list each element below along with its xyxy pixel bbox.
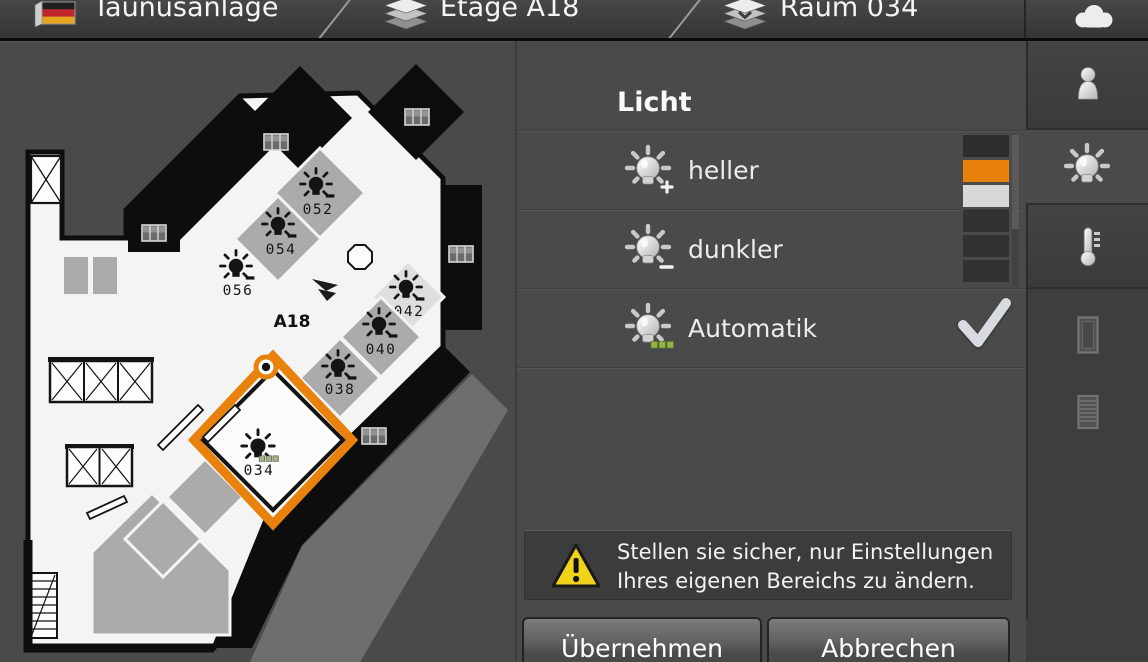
bulb-darker-icon — [620, 221, 678, 279]
bulb-brighter-icon — [620, 142, 678, 200]
level-scrollbar-thumb[interactable] — [1012, 135, 1019, 229]
level-segment — [963, 185, 1009, 207]
tab-temperature[interactable] — [1026, 205, 1148, 289]
elevator-bank-upper — [48, 357, 154, 402]
option-automatik[interactable]: Automatik — [517, 290, 957, 367]
radiator-icon — [142, 225, 166, 241]
warning-text: Stellen sie sicher, nur Einstellungen Ih… — [617, 538, 993, 596]
option-dunkler[interactable]: dunkler — [517, 211, 957, 288]
level-segment — [963, 210, 1009, 232]
tab-presence[interactable] — [1026, 41, 1148, 130]
room-label: 052 — [303, 202, 334, 218]
breadcrumb-separators — [0, 0, 1026, 38]
warning-box: Stellen sie sicher, nur Einstellungen Ih… — [524, 530, 1012, 600]
room-control-screen: Taunusanlage Etage A18 Raum 034 — [0, 0, 1148, 662]
room-label: 040 — [366, 342, 397, 358]
blinds-icon[interactable] — [1067, 391, 1109, 433]
brightness-level-indicator[interactable] — [963, 135, 1009, 285]
cloud-icon[interactable] — [1070, 3, 1118, 31]
tab-area-disabled — [1026, 289, 1148, 619]
floorplan: 052 054 056 042 040 038 — [0, 41, 515, 662]
bulb-auto-icon — [620, 300, 678, 358]
stair-core — [31, 156, 61, 203]
level-segment — [963, 235, 1009, 257]
light-control-panel: Licht heller dunkler A — [515, 41, 1028, 662]
floor-label: A18 — [274, 312, 311, 332]
option-label: dunkler — [688, 235, 783, 264]
level-segment — [963, 135, 1009, 157]
stairs — [29, 573, 57, 638]
check-icon — [955, 296, 1013, 352]
topbar-divider — [1024, 0, 1026, 38]
column-octagon — [348, 245, 372, 269]
option-label: Automatik — [688, 314, 817, 343]
tab-light[interactable] — [1026, 130, 1148, 205]
apply-button[interactable]: Übernehmen — [522, 617, 762, 662]
room-label: 038 — [325, 382, 356, 398]
room-label: 054 — [266, 242, 297, 258]
panel-title: Licht — [617, 87, 692, 118]
radiator-icon — [264, 134, 288, 150]
warning-icon — [551, 543, 601, 589]
elevator-bank-lower — [65, 444, 134, 486]
cancel-button[interactable]: Abbrechen — [767, 617, 1010, 662]
level-scrollbar[interactable] — [1012, 135, 1019, 287]
radiator-icon — [405, 109, 429, 125]
function-tabs — [1026, 41, 1148, 662]
option-heller[interactable]: heller — [517, 132, 957, 209]
radiator-icon — [362, 428, 386, 444]
window-icon[interactable] — [1067, 314, 1109, 356]
option-label: heller — [688, 156, 759, 185]
level-segment — [963, 160, 1009, 182]
room-label: 056 — [223, 283, 254, 299]
divider — [517, 367, 1028, 369]
thermometer-icon — [1065, 223, 1111, 269]
person-icon — [1065, 62, 1111, 108]
bulb-icon — [1061, 141, 1113, 193]
radiator-icon — [449, 246, 473, 262]
breadcrumb-bar: Taunusanlage Etage A18 Raum 034 — [0, 0, 1148, 41]
level-segment — [963, 260, 1009, 282]
room-label: 034 — [244, 463, 275, 479]
